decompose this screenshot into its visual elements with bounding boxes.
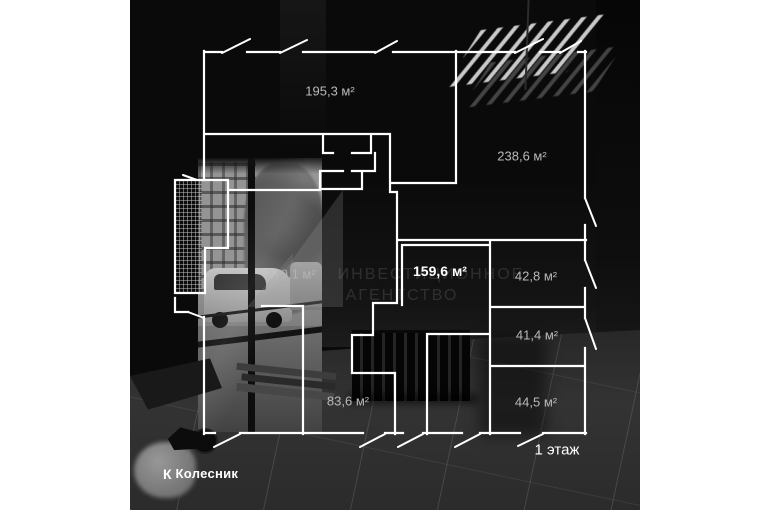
room-area-label: 44,5 м² <box>515 395 557 410</box>
room-area-label: 42,8 м² <box>515 269 557 284</box>
floor-plan-lines <box>0 0 770 510</box>
room-area-label: 41,4 м² <box>516 328 558 343</box>
room-area-label: 195,3 м² <box>305 84 354 99</box>
room-area-label: 83,6 м² <box>327 394 369 409</box>
room-area-label-highlight: 159,6 м² <box>413 263 467 279</box>
agency-logo-text: Колесник <box>176 466 239 481</box>
door-swing-marks <box>183 39 596 447</box>
room-area-label: 279,1 м² <box>266 267 315 282</box>
listing-image: ИНВЕСТИЦИОННОЕ АГЕНТСТВО 195,3 м² 238,6 … <box>0 0 770 510</box>
agency-logo: К Колесник <box>163 466 238 481</box>
walls <box>175 51 586 434</box>
watermark-logo-triangles <box>247 190 343 307</box>
floor-number-label: 1 этаж <box>535 442 580 459</box>
room-area-label: 238,6 м² <box>497 149 546 164</box>
agency-logo-icon: К <box>163 467 172 481</box>
